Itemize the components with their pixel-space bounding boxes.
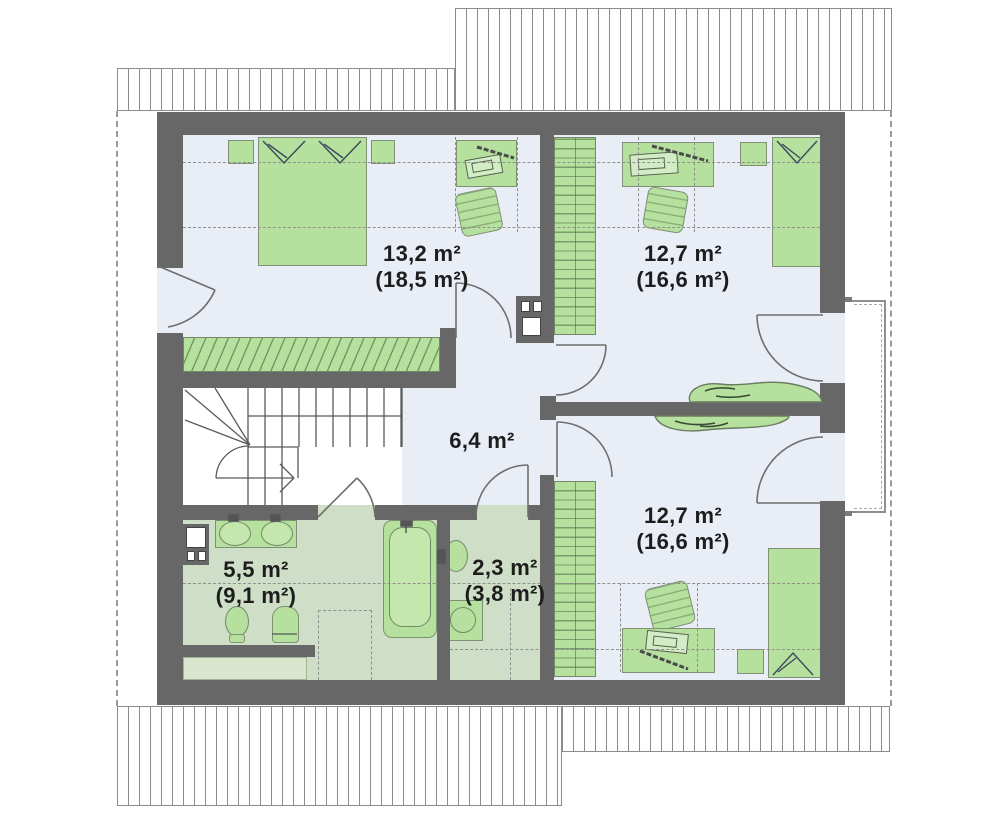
door-arc — [158, 266, 215, 327]
attic-floor-plan: 13,2 m² (18,5 m²) 12,7 m² (16,6 m²) 6,4 … — [0, 0, 1000, 822]
plant — [655, 382, 822, 431]
floor-area-value: (16,6 m²) — [583, 529, 783, 555]
staircase — [185, 388, 402, 505]
door-arc — [318, 478, 375, 517]
area-value: 2,3 m² — [405, 555, 605, 581]
area-value: 12,7 m² — [583, 241, 783, 267]
room-area-label-bedroom1: 13,2 m² (18,5 m²) — [322, 241, 522, 293]
area-value: 5,5 m² — [156, 557, 356, 583]
floor-area-value: (9,1 m²) — [156, 583, 356, 609]
plan-linework — [0, 0, 1000, 822]
area-value: 12,7 m² — [583, 503, 783, 529]
door-arc — [476, 465, 528, 517]
door-arc — [757, 437, 823, 503]
floor-area-value: (16,6 m²) — [583, 267, 783, 293]
door-arc — [757, 315, 823, 381]
door-arc — [556, 345, 606, 395]
floor-area-value: (3,8 m²) — [405, 581, 605, 607]
room-area-label-bedroom2: 12,7 m² (16,6 m²) — [583, 241, 783, 293]
room-area-label-wc: 2,3 m² (3,8 m²) — [405, 555, 605, 607]
area-value: 6,4 m² — [382, 428, 582, 454]
room-area-label-bedroom3: 12,7 m² (16,6 m²) — [583, 503, 783, 555]
area-value: 13,2 m² — [322, 241, 522, 267]
floor-area-value: (18,5 m²) — [322, 267, 522, 293]
room-area-label-hall: 6,4 m² — [382, 428, 582, 454]
room-area-label-bathroom: 5,5 m² (9,1 m²) — [156, 557, 356, 609]
